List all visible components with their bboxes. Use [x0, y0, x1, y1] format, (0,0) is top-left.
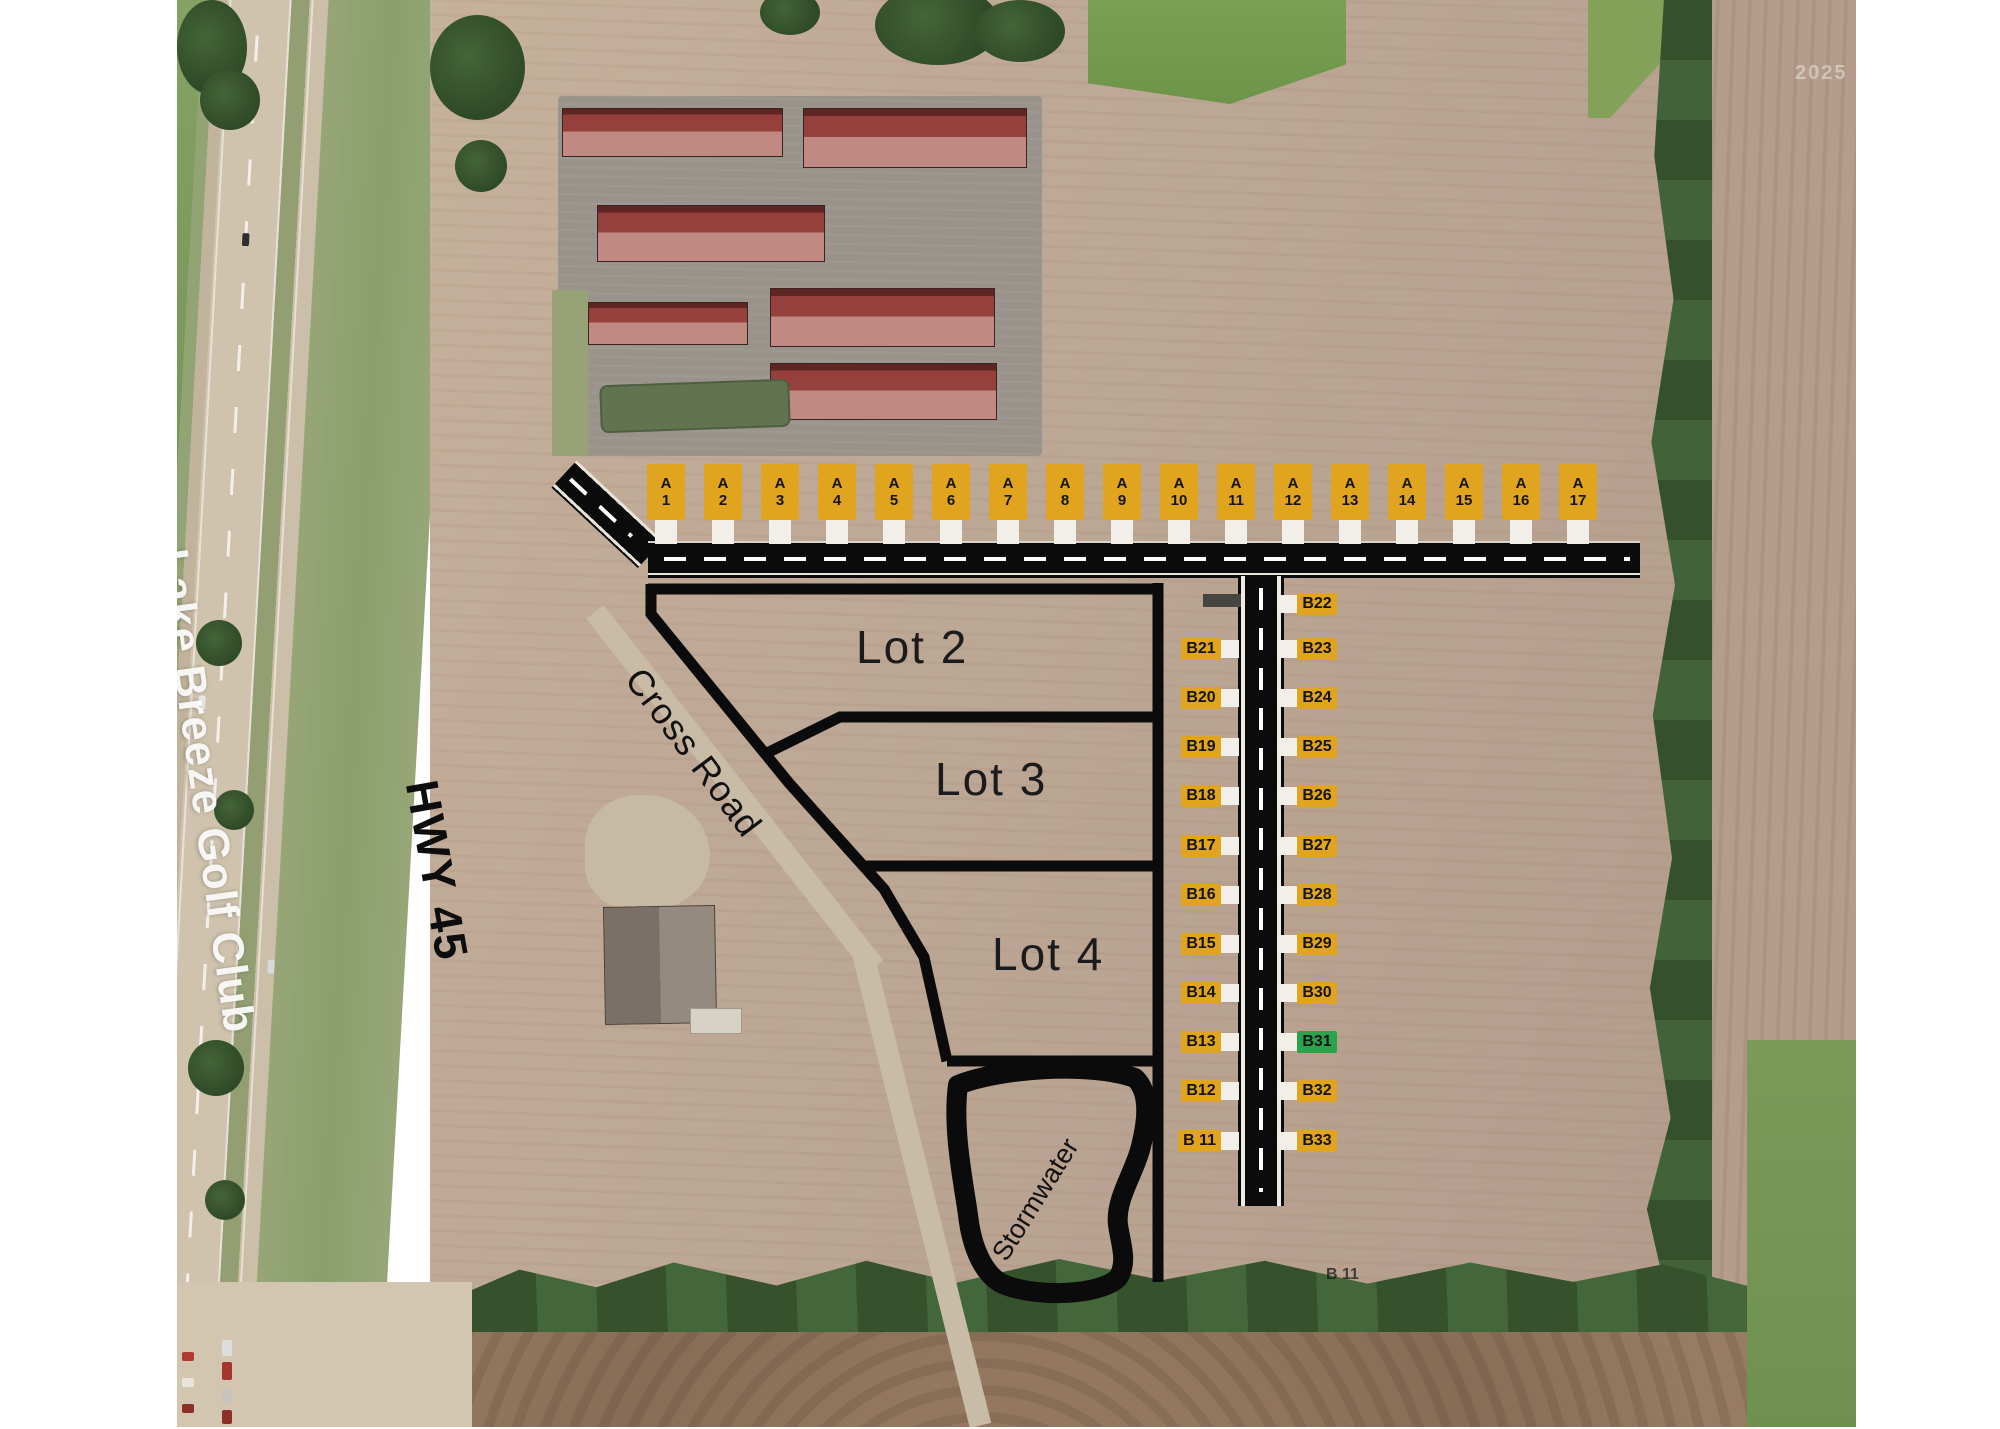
driveway-stub [826, 520, 848, 544]
lot-marker-label: B21 [1181, 638, 1221, 660]
lot-marker-label: A11 [1217, 464, 1255, 520]
driveway-stub [1221, 640, 1239, 658]
driveway-stub [1221, 689, 1239, 707]
driveway-stub [1279, 886, 1297, 904]
lot-marker-B17: B17 [1181, 835, 1239, 857]
lot-marker-label: A13 [1331, 464, 1369, 520]
driveway-stub [1279, 984, 1297, 1002]
lot-marker-label: B30 [1297, 982, 1337, 1004]
driveway-stub [1396, 520, 1418, 544]
lot-marker-label: B27 [1297, 835, 1337, 857]
driveway-stub [1221, 1033, 1239, 1051]
lot-marker-label: B24 [1297, 687, 1337, 709]
lot-marker-label: B17 [1181, 835, 1221, 857]
lot2-label: Lot 2 [856, 620, 968, 674]
lot-marker-label: A5 [875, 464, 913, 520]
lot4-label: Lot 4 [992, 927, 1104, 981]
driveway-stub [1168, 520, 1190, 544]
driveway-stub [1279, 738, 1297, 756]
driveway-stub [1279, 1082, 1297, 1100]
lot-marker-label: A12 [1274, 464, 1312, 520]
driveway-stub [1279, 1033, 1297, 1051]
lot-marker-A12: A12 [1274, 464, 1312, 544]
lot-marker-B11: B 11 [1178, 1130, 1239, 1152]
lot-marker-A6: A6 [932, 464, 970, 544]
lot-marker-label: B19 [1181, 736, 1221, 758]
center-line-dashes [664, 557, 1630, 561]
lot-marker-B32: B32 [1279, 1080, 1337, 1102]
lot-marker-label: B14 [1181, 982, 1221, 1004]
site-plan-map: 2025 B 11 Lot 2 Lot 3 Lot 4 Cross Road S… [0, 0, 2000, 1429]
lot-marker-B28: B28 [1279, 884, 1337, 906]
lot-marker-B16: B16 [1181, 884, 1239, 906]
driveway-stub [655, 520, 677, 544]
lot-marker-label: A4 [818, 464, 856, 520]
lot-marker-B13: B13 [1181, 1031, 1239, 1053]
lot-marker-label: B13 [1181, 1031, 1221, 1053]
lot-marker-B26: B26 [1279, 785, 1337, 807]
lot-marker-B12: B12 [1181, 1080, 1239, 1102]
aerial-photo: 2025 B 11 Lot 2 Lot 3 Lot 4 Cross Road S… [177, 0, 1856, 1427]
driveway-stub [997, 520, 1019, 544]
lot-marker-label: B16 [1181, 884, 1221, 906]
lot-marker-label: A6 [932, 464, 970, 520]
lot-marker-label: A1 [647, 464, 685, 520]
lot-marker-A7: A7 [989, 464, 1027, 544]
driveway-stub [1221, 886, 1239, 904]
lot-marker-A3: A3 [761, 464, 799, 544]
driveway-stub [1279, 1132, 1297, 1150]
lot-marker-B30: B30 [1279, 982, 1337, 1004]
lot-marker-A1: A1 [647, 464, 685, 544]
driveway-stub [769, 520, 791, 544]
lot-marker-label: A17 [1559, 464, 1597, 520]
driveway-stub [1279, 640, 1297, 658]
driveway-stub [1221, 837, 1239, 855]
lot2-lot3-divider [767, 717, 1158, 753]
driveway-stub [1279, 595, 1297, 613]
lot-marker-label: A2 [704, 464, 742, 520]
driveway-stub [1279, 935, 1297, 953]
driveway-stub [1279, 689, 1297, 707]
lot-marker-B24: B24 [1279, 687, 1337, 709]
lot-marker-label: B26 [1297, 785, 1337, 807]
lot-marker-A15: A15 [1445, 464, 1483, 544]
driveway-stub [1221, 984, 1239, 1002]
lot-marker-A5: A5 [875, 464, 913, 544]
lot-marker-B27: B27 [1279, 835, 1337, 857]
lot-marker-label: A7 [989, 464, 1027, 520]
driveway-stub [940, 520, 962, 544]
driveway-stub [1339, 520, 1361, 544]
lot-marker-A4: A4 [818, 464, 856, 544]
driveway-stub [712, 520, 734, 544]
driveway-stub [1111, 520, 1133, 544]
lot-marker-label: A9 [1103, 464, 1141, 520]
lot-marker-B33: B33 [1279, 1130, 1337, 1152]
lot-marker-A11: A11 [1217, 464, 1255, 544]
lot-marker-label: B15 [1181, 933, 1221, 955]
driveway-stub [1221, 787, 1239, 805]
driveway-stub [1225, 520, 1247, 544]
driveway-stub [1510, 520, 1532, 544]
driveway-stub [1221, 935, 1239, 953]
lot-marker-A13: A13 [1331, 464, 1369, 544]
lot-marker-label: B20 [1181, 687, 1221, 709]
aerial-scene: 2025 B 11 Lot 2 Lot 3 Lot 4 Cross Road S… [177, 0, 1856, 1427]
driveway-stub [1279, 787, 1297, 805]
lot-marker-B21: B21 [1181, 638, 1239, 660]
lot-marker-B20: B20 [1181, 687, 1239, 709]
lot-marker-label: B18 [1181, 785, 1221, 807]
driveway-stub [1453, 520, 1475, 544]
lot-marker-B23: B23 [1279, 638, 1337, 660]
driveway-stub [1221, 1082, 1239, 1100]
driveway-stub [1054, 520, 1076, 544]
lot-marker-B19: B19 [1181, 736, 1239, 758]
lot-marker-A10: A10 [1160, 464, 1198, 544]
lot-marker-B31: B31 [1279, 1031, 1337, 1053]
center-line-dashes [1259, 588, 1263, 1192]
lot-marker-A14: A14 [1388, 464, 1426, 544]
driveway-stub [1567, 520, 1589, 544]
lot3-label: Lot 3 [935, 752, 1047, 806]
lot-marker-B22: B22 [1279, 593, 1337, 615]
lot-marker-B14: B14 [1181, 982, 1239, 1004]
lot-marker-A8: A8 [1046, 464, 1084, 544]
lot-marker-B25: B25 [1279, 736, 1337, 758]
access-road-north [648, 541, 1640, 578]
lot-marker-label: A16 [1502, 464, 1540, 520]
driveway-stub [883, 520, 905, 544]
lot-marker-label: B22 [1297, 593, 1337, 615]
lot-marker-label: A3 [761, 464, 799, 520]
lot-marker-label: B12 [1181, 1080, 1221, 1102]
lot-marker-A9: A9 [1103, 464, 1141, 544]
driveway-stub [1221, 738, 1239, 756]
existing-driveway [1203, 594, 1241, 607]
lot-marker-label: B28 [1297, 884, 1337, 906]
lot-marker-B29: B29 [1279, 933, 1337, 955]
driveway-stub [1279, 837, 1297, 855]
lot-marker-label: B31 [1297, 1031, 1337, 1053]
lot-marker-A2: A2 [704, 464, 742, 544]
driveway-stub [1282, 520, 1304, 544]
lot-marker-A17: A17 [1559, 464, 1597, 544]
lot-marker-label: B32 [1297, 1080, 1337, 1102]
lot-marker-B15: B15 [1181, 933, 1239, 955]
lot-marker-label: B33 [1297, 1130, 1337, 1152]
lot-marker-label: B29 [1297, 933, 1337, 955]
lot-marker-B18: B18 [1181, 785, 1239, 807]
lot-marker-A16: A16 [1502, 464, 1540, 544]
lot-marker-label: B 11 [1178, 1130, 1221, 1152]
lot-marker-label: A8 [1046, 464, 1084, 520]
access-road-east [1238, 576, 1284, 1206]
lot-marker-label: A14 [1388, 464, 1426, 520]
lot-marker-label: B25 [1297, 736, 1337, 758]
lot-marker-label: A15 [1445, 464, 1483, 520]
lot-marker-label: B23 [1297, 638, 1337, 660]
lot-marker-label: A10 [1160, 464, 1198, 520]
driveway-stub [1221, 1132, 1239, 1150]
